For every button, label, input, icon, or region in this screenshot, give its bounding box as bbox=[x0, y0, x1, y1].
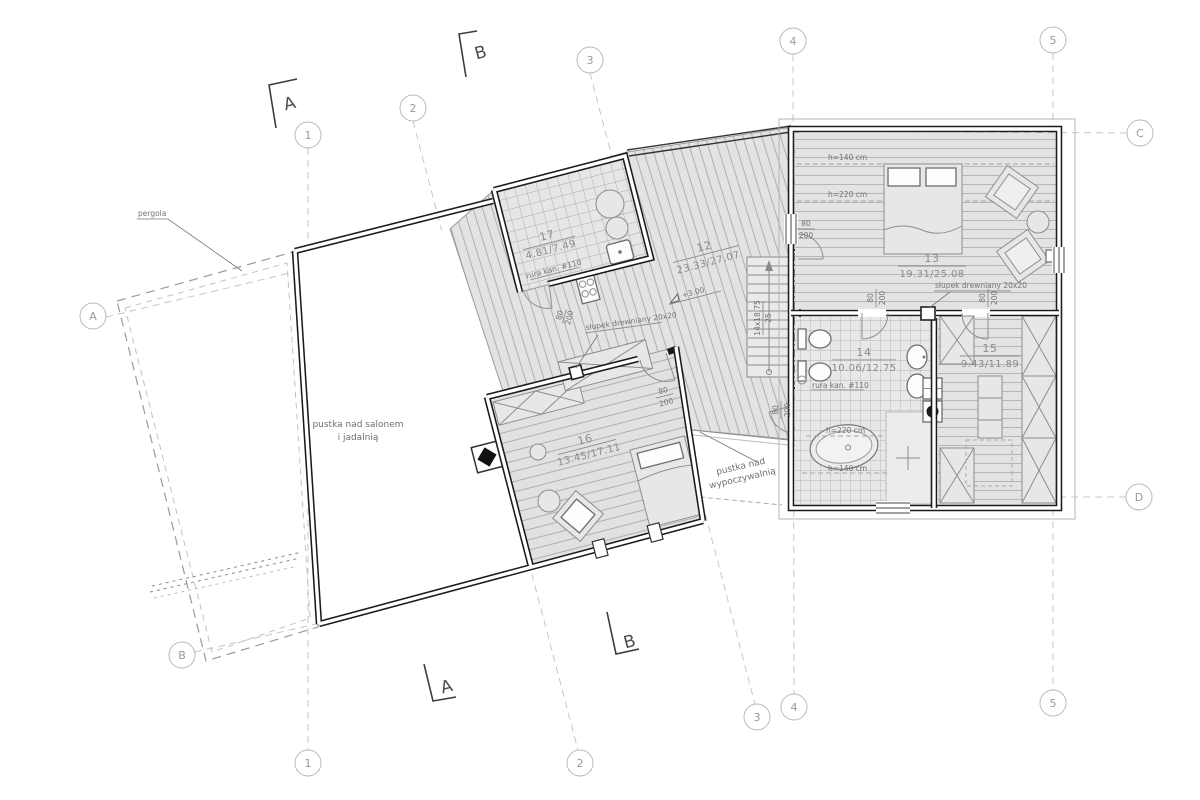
pergola-label: pergola bbox=[138, 209, 166, 218]
void-over-lounge: pustka nad wypoczywalnią bbox=[706, 455, 778, 492]
void-salon-label-1: pustka nad salonem bbox=[312, 420, 403, 430]
svg-text:14: 14 bbox=[856, 346, 871, 359]
svg-text:200: 200 bbox=[990, 291, 999, 306]
svg-text:200: 200 bbox=[878, 291, 887, 306]
wood-post-right bbox=[921, 307, 935, 320]
side-table-16 bbox=[538, 490, 560, 512]
h140-label-14: h=140 cm bbox=[828, 464, 867, 473]
svg-text:10.06/12.75: 10.06/12.75 bbox=[831, 363, 896, 374]
right-building: h=140 cm h=220 cm 13 19.31/25.08 bbox=[779, 119, 1075, 519]
svg-text:19.31/25.08: 19.31/25.08 bbox=[899, 269, 964, 280]
fixture-circle-2 bbox=[606, 217, 628, 239]
svg-text:3: 3 bbox=[587, 54, 594, 67]
svg-text:2: 2 bbox=[410, 102, 417, 115]
svg-text:80: 80 bbox=[978, 293, 987, 303]
svg-text:C: C bbox=[1136, 127, 1144, 140]
svg-text:4: 4 bbox=[791, 701, 798, 714]
floor-plan-svg: pergola pustka nad salonem i jadalnią bbox=[0, 0, 1200, 800]
svg-text:1: 1 bbox=[305, 129, 312, 142]
svg-text:5: 5 bbox=[1050, 34, 1057, 47]
svg-text:1: 1 bbox=[305, 757, 312, 770]
svg-text:25: 25 bbox=[764, 313, 773, 323]
bed-13 bbox=[884, 164, 962, 254]
svg-text:15: 15 bbox=[982, 342, 997, 355]
svg-text:D: D bbox=[1135, 491, 1143, 504]
h220-label-14: h=220 cm bbox=[826, 426, 865, 435]
window-bottom bbox=[876, 501, 910, 515]
void-salon-label-2: i jadalnią bbox=[338, 433, 379, 443]
svg-text:14x18,75: 14x18,75 bbox=[753, 300, 762, 336]
section-a-bottom: A bbox=[438, 676, 455, 698]
svg-text:5: 5 bbox=[1050, 697, 1057, 710]
window-13-right bbox=[1052, 247, 1066, 273]
svg-text:13: 13 bbox=[924, 252, 939, 265]
svg-text:9.43/11.89: 9.43/11.89 bbox=[961, 359, 1019, 370]
svg-text:2: 2 bbox=[577, 757, 584, 770]
svg-text:80: 80 bbox=[801, 219, 811, 228]
svg-text:3: 3 bbox=[754, 711, 761, 724]
svg-text:80: 80 bbox=[771, 405, 780, 415]
svg-text:A: A bbox=[89, 310, 97, 323]
island-15 bbox=[978, 376, 1002, 438]
pergola-outline: pergola bbox=[117, 209, 318, 661]
section-a-top: A bbox=[281, 93, 298, 115]
round-table-13 bbox=[1027, 211, 1049, 233]
floor-plan-canvas: pergola pustka nad salonem i jadalnią bbox=[0, 0, 1200, 800]
section-b-top: B bbox=[472, 42, 488, 64]
h220-label-13: h=220 cm bbox=[828, 190, 867, 199]
svg-text:200: 200 bbox=[783, 403, 792, 418]
pipe-label-14: rura kan. #110 bbox=[812, 381, 869, 390]
svg-text:4: 4 bbox=[790, 35, 797, 48]
toilet-2 bbox=[798, 361, 831, 381]
h140-label-13: h=140 cm bbox=[828, 153, 867, 162]
svg-text:200: 200 bbox=[799, 231, 814, 240]
fixture-circle-1 bbox=[596, 190, 624, 218]
window-13-left bbox=[784, 214, 798, 244]
svg-text:80: 80 bbox=[866, 293, 875, 303]
svg-text:B: B bbox=[178, 649, 186, 662]
basin-1 bbox=[907, 345, 927, 369]
toilet-1 bbox=[798, 329, 831, 349]
svg-text:słupek drewniany 20x20: słupek drewniany 20x20 bbox=[935, 281, 1027, 290]
section-b-bottom: B bbox=[621, 631, 637, 653]
